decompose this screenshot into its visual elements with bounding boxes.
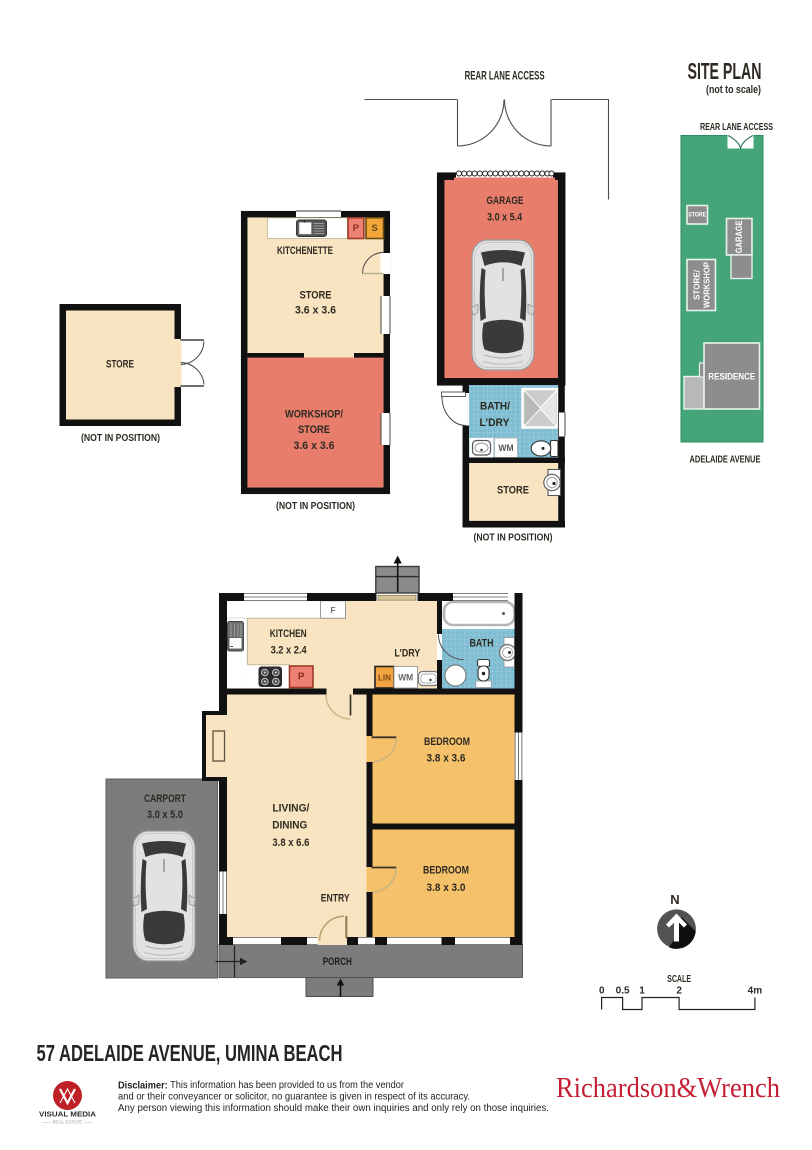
svg-text:ENTRY: ENTRY xyxy=(321,892,351,904)
svg-text:WORKSHOP/: WORKSHOP/ xyxy=(285,409,343,421)
svg-text:3.6 x 3.6: 3.6 x 3.6 xyxy=(294,440,335,452)
svg-text:3.0 x 5.0: 3.0 x 5.0 xyxy=(147,809,183,821)
svg-text:4m: 4m xyxy=(748,986,763,997)
svg-text:L’DRY: L’DRY xyxy=(480,417,511,429)
svg-text:DINING: DINING xyxy=(272,819,307,831)
svg-text:3.0 x 5.4: 3.0 x 5.4 xyxy=(487,212,523,224)
svg-text:PORCH: PORCH xyxy=(323,956,352,968)
svg-text:STORE: STORE xyxy=(300,290,332,302)
svg-text:57 ADELAIDE AVENUE, UMINA BEAC: 57 ADELAIDE AVENUE, UMINA BEACH xyxy=(37,1040,343,1066)
svg-text:REAR LANE ACCESS: REAR LANE ACCESS xyxy=(465,71,545,83)
svg-text:LIN: LIN xyxy=(378,673,391,683)
svg-text:BATH/: BATH/ xyxy=(480,401,510,413)
svg-text:2: 2 xyxy=(676,986,682,997)
svg-text:GARAGE: GARAGE xyxy=(734,220,745,253)
svg-text:—— REAL ESTATE ——: —— REAL ESTATE —— xyxy=(43,1120,93,1125)
svg-text:Disclaimer: This information h: Disclaimer: This information has been pr… xyxy=(118,1080,405,1091)
svg-text:0: 0 xyxy=(599,986,605,997)
svg-text:BEDROOM: BEDROOM xyxy=(423,865,469,877)
svg-text:WM: WM xyxy=(499,443,514,453)
svg-text:ADELAIDE AVENUE: ADELAIDE AVENUE xyxy=(690,455,761,466)
svg-text:RESIDENCE: RESIDENCE xyxy=(708,371,755,382)
svg-text:N: N xyxy=(670,892,679,907)
svg-text:Richardson&Wrench: Richardson&Wrench xyxy=(556,1073,780,1104)
svg-text:(NOT IN POSITION): (NOT IN POSITION) xyxy=(474,532,553,544)
svg-text:S: S xyxy=(372,223,378,234)
svg-text:WORKSHOP: WORKSHOP xyxy=(702,262,712,308)
svg-text:P: P xyxy=(298,672,305,683)
svg-text:KITCHENETTE: KITCHENETTE xyxy=(277,245,333,257)
svg-text:BEDROOM: BEDROOM xyxy=(424,736,470,748)
svg-text:VISUAL MEDIA: VISUAL MEDIA xyxy=(39,1112,96,1119)
svg-text:REAR LANE ACCESS: REAR LANE ACCESS xyxy=(700,122,773,133)
svg-text:WM: WM xyxy=(398,673,413,683)
svg-text:(not to scale): (not to scale) xyxy=(706,84,761,96)
svg-text:P: P xyxy=(353,223,360,234)
svg-text:STORE/: STORE/ xyxy=(691,269,701,300)
svg-text:SCALE: SCALE xyxy=(667,974,691,985)
svg-text:STORE: STORE xyxy=(298,424,330,436)
svg-text:Any person viewing this inform: Any person viewing this information shou… xyxy=(118,1103,549,1114)
svg-text:3.2 x 2.4: 3.2 x 2.4 xyxy=(271,645,308,657)
svg-text:3.8 x 6.6: 3.8 x 6.6 xyxy=(272,837,309,849)
svg-text:and or their conveyancer or so: and or their conveyancer or solicitor, n… xyxy=(118,1092,470,1103)
svg-text:3.6 x 3.6: 3.6 x 3.6 xyxy=(295,305,336,317)
svg-text:SITE PLAN: SITE PLAN xyxy=(688,58,762,84)
svg-text:STORE: STORE xyxy=(497,485,529,497)
svg-text:(NOT IN POSITION): (NOT IN POSITION) xyxy=(81,432,160,444)
svg-text:1: 1 xyxy=(639,986,645,997)
svg-text:0.5: 0.5 xyxy=(616,986,630,997)
svg-text:STORE: STORE xyxy=(106,359,134,371)
svg-text:BATH: BATH xyxy=(470,638,494,650)
svg-text:F: F xyxy=(330,605,335,615)
svg-text:KITCHEN: KITCHEN xyxy=(270,628,307,640)
svg-text:(NOT IN POSITION): (NOT IN POSITION) xyxy=(276,500,355,512)
svg-text:LIVING/: LIVING/ xyxy=(272,803,309,815)
svg-text:L’DRY: L’DRY xyxy=(394,648,421,660)
svg-text:3.8 x 3.0: 3.8 x 3.0 xyxy=(427,882,466,894)
svg-text:GARAGE: GARAGE xyxy=(487,195,524,207)
svg-text:CARPORT: CARPORT xyxy=(144,793,186,805)
svg-text:STORE: STORE xyxy=(688,212,706,219)
svg-text:3.8 x 3.6: 3.8 x 3.6 xyxy=(427,753,466,765)
